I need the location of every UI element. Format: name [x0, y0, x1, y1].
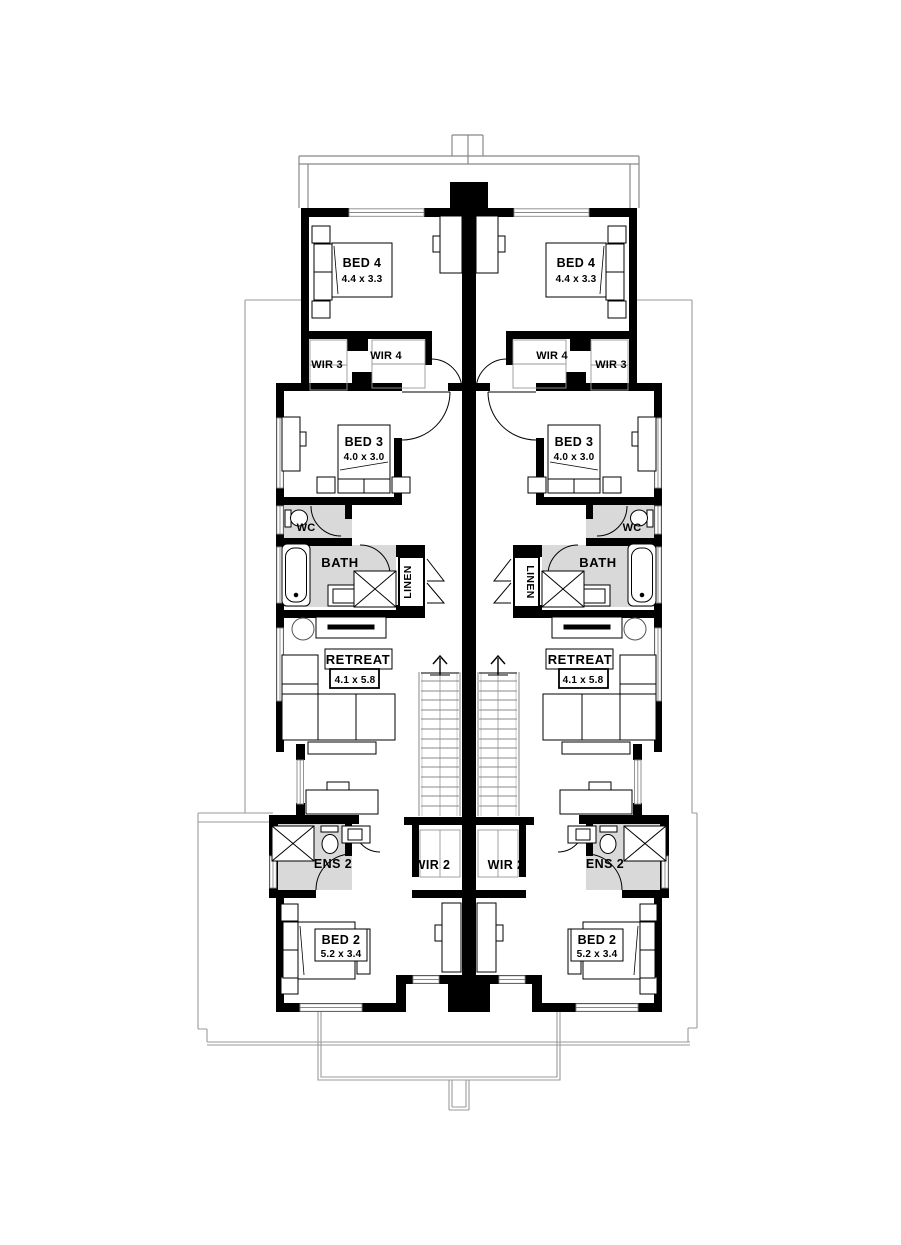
room-label-bed3-left: BED 3 — [345, 435, 384, 449]
room-label-wir2-right: WIR 2 — [488, 858, 525, 872]
room-label-bed3-right: BED 3 — [555, 435, 594, 449]
room-label-ens2-right: ENS 2 — [586, 857, 624, 871]
room-dim-bed4-left: 4.4 x 3.3 — [342, 274, 383, 285]
room-label-retreat-right: RETREAT — [548, 652, 613, 667]
room-label-bed4-right: BED 4 — [557, 256, 596, 270]
room-label-bath-right: BATH — [579, 555, 617, 570]
room-label-wir2-left: WIR 2 — [414, 858, 451, 872]
floor-plan-drawing: BED 4 4.4 x 3.3 WIR 3 WIR 4 BED 3 4.0 x … — [0, 0, 901, 1245]
room-dim-bed4-right: 4.4 x 3.3 — [556, 274, 597, 285]
roof-stub-outline — [452, 135, 483, 164]
party-wall — [448, 182, 490, 1012]
balcony-outline — [318, 1012, 560, 1110]
room-label-bath-left: BATH — [321, 555, 359, 570]
unit-right — [476, 208, 669, 1012]
room-label-wc-left: WC — [297, 522, 316, 534]
room-label-ens2-left: ENS 2 — [314, 857, 352, 871]
room-dim-bed3-left: 4.0 x 3.0 — [344, 452, 385, 463]
room-label-linen-left: LINEN — [402, 565, 414, 599]
room-dim-retreat-left: 4.1 x 5.8 — [335, 675, 376, 686]
balcony-post-outline — [449, 1080, 469, 1110]
room-label-wc-right: WC — [623, 522, 642, 534]
room-label-wir4-left: WIR 4 — [370, 350, 402, 362]
room-label-wir3-right: WIR 3 — [595, 359, 627, 371]
room-dim-bed3-right: 4.0 x 3.0 — [554, 452, 595, 463]
room-label-wir4-right: WIR 4 — [536, 350, 568, 362]
room-label-bed2-left: BED 2 — [322, 933, 361, 947]
room-label-linen-right: LINEN — [524, 565, 536, 599]
room-label-bed2-right: BED 2 — [578, 933, 617, 947]
room-label-bed4-left: BED 4 — [343, 256, 382, 270]
room-dim-bed2-right: 5.2 x 3.4 — [577, 949, 618, 960]
room-dim-retreat-right: 4.1 x 5.8 — [563, 675, 604, 686]
room-label-retreat-left: RETREAT — [326, 652, 391, 667]
room-dim-bed2-left: 5.2 x 3.4 — [321, 949, 362, 960]
unit-left — [269, 208, 462, 1012]
floor-plan-canvas: BED 4 4.4 x 3.3 WIR 3 WIR 4 BED 3 4.0 x … — [0, 0, 901, 1245]
room-label-wir3-left: WIR 3 — [311, 359, 343, 371]
